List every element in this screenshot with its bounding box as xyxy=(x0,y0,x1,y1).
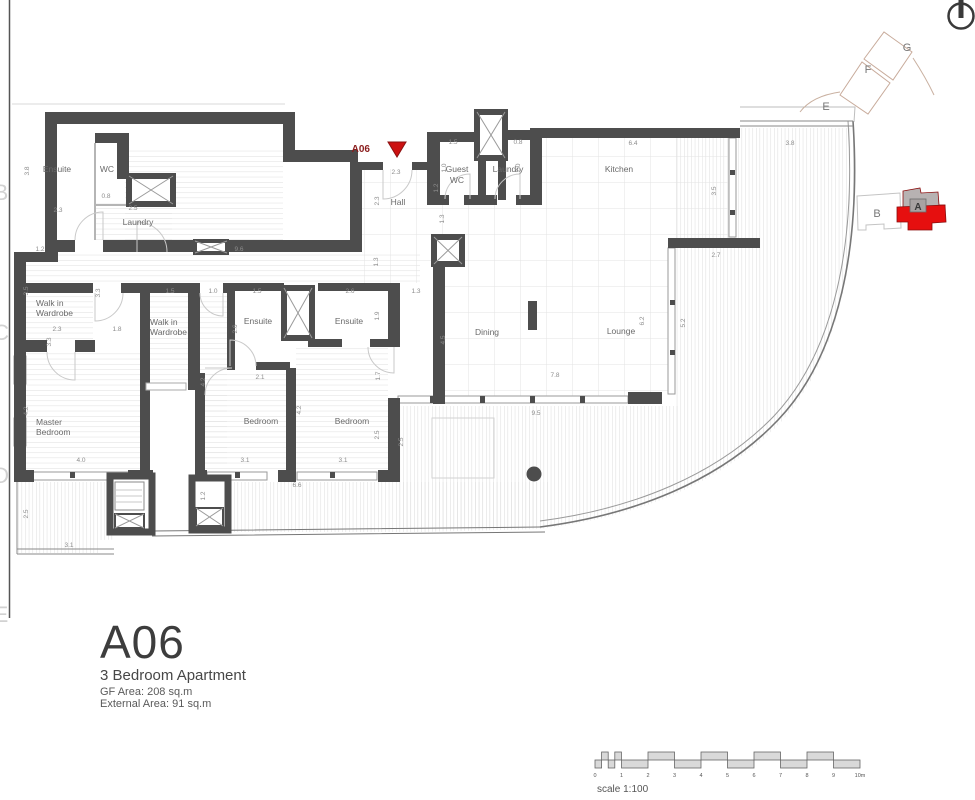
dim: 1.5 xyxy=(165,288,174,295)
north-arrow-icon xyxy=(949,0,974,29)
dim: 1.7 xyxy=(375,371,382,380)
room-label-bedroom-3: Bedroom xyxy=(335,416,370,426)
dim: 2.3 xyxy=(391,169,400,176)
room-label-guest-wc-l2: WC xyxy=(450,175,464,185)
key-plan-letter-f: F xyxy=(865,64,872,76)
dim: 4.2 xyxy=(23,406,30,415)
dim: 4.0 xyxy=(76,457,85,464)
dim: 1.9 xyxy=(374,311,381,320)
entry-arrow-icon xyxy=(388,142,406,157)
dim: 3.3 xyxy=(95,288,102,297)
scale-label: scale 1:100 xyxy=(597,784,649,795)
key-plan-letter-e: E xyxy=(822,101,829,113)
dim: 1.3 xyxy=(373,257,380,266)
dim: 3.1 xyxy=(338,457,347,464)
dim: 2.5 xyxy=(398,437,405,446)
room-label-dining: Dining xyxy=(475,327,499,337)
dim: 0.8 xyxy=(513,139,522,146)
dim: 9.6 xyxy=(234,246,243,253)
dim: 3.8 xyxy=(24,166,31,175)
unit-entry-marker: A06 xyxy=(352,142,406,157)
wardrobe-closet xyxy=(146,383,186,390)
dim: 4.2 xyxy=(200,377,207,386)
scale-tick: 4 xyxy=(699,773,702,779)
scale-tick: 10m xyxy=(855,773,866,779)
room-label-ensuite-1: Ensuite xyxy=(43,164,72,174)
scale-tick: 7 xyxy=(779,773,782,779)
key-plan-letter-b: B xyxy=(873,208,880,220)
title-external-area: External Area: 91 sq.m xyxy=(100,698,211,710)
dim: 2.5 xyxy=(128,205,137,212)
floor-plan-page: Ensuite WC Laundry Walk in Wardrobe Walk… xyxy=(0,0,975,800)
dim: 1.2 xyxy=(433,183,440,192)
key-plan-letter-g: G xyxy=(903,42,912,54)
dim: 2.5 xyxy=(374,430,381,439)
dim: 9.5 xyxy=(531,410,540,417)
dim: 0.8 xyxy=(101,193,110,200)
grid-letter-d: D xyxy=(0,463,9,488)
dim: 2.3 xyxy=(374,196,381,205)
room-label-ensuite-3: Ensuite xyxy=(335,316,364,326)
dim: 1.0 xyxy=(208,288,217,295)
dim: 4.2 xyxy=(296,405,303,414)
title-block: A06 3 Bedroom Apartment GF Area: 208 sq.… xyxy=(100,616,247,710)
dim: 3.5 xyxy=(23,286,30,295)
dim: 1.2 xyxy=(200,491,207,500)
dim: 2.3 xyxy=(53,207,62,214)
room-label-guest-wc-l1: Guest xyxy=(446,164,469,174)
grid-letter-b: B xyxy=(0,180,8,205)
dim: 1.2 xyxy=(35,246,44,253)
scale-tick: 6 xyxy=(752,773,755,779)
dim: 1.8 xyxy=(112,326,121,333)
dim: 6.4 xyxy=(628,140,637,147)
dim: 4.5 xyxy=(440,335,447,344)
scale-tick: 8 xyxy=(805,773,808,779)
scale-bar: 0 1 2 3 4 5 6 7 8 9 10m scale 1:100 xyxy=(593,752,865,795)
room-label-ensuite-2: Ensuite xyxy=(244,316,273,326)
scale-tick: 0 xyxy=(593,773,596,779)
room-label-wardrobe2-l2: Wardrobe xyxy=(150,327,187,337)
room-label-kitchen: Kitchen xyxy=(605,164,634,174)
dim: 2.6 xyxy=(232,324,239,333)
dim: 1.3 xyxy=(439,214,446,223)
dim: 2.7 xyxy=(711,252,720,259)
room-label-master-l2: Bedroom xyxy=(36,427,71,437)
dim: 3.1 xyxy=(240,457,249,464)
dim: 3.3 xyxy=(46,337,53,346)
dim: 2.6 xyxy=(345,288,354,295)
dim: 3.1 xyxy=(64,542,73,549)
dim: 1.5 xyxy=(252,288,261,295)
grid-letter-e: E xyxy=(0,602,8,627)
terrace-column xyxy=(527,467,542,482)
room-label-master-l1: Master xyxy=(36,417,62,427)
dim: 2.5 xyxy=(23,509,30,518)
scale-tick: 1 xyxy=(620,773,623,779)
margin-grid: B C D E xyxy=(0,0,10,627)
living-column xyxy=(528,301,537,330)
dim: 1.0 xyxy=(441,163,448,172)
floor-plan-canvas: Ensuite WC Laundry Walk in Wardrobe Walk… xyxy=(0,0,975,800)
room-label-laundry-1: Laundry xyxy=(123,217,154,227)
scale-tick: 3 xyxy=(673,773,676,779)
room-label-wardrobe1-l2: Wardrobe xyxy=(36,308,73,318)
title-gf-area: GF Area: 208 sq.m xyxy=(100,686,192,698)
dim: 7.8 xyxy=(550,372,559,379)
title-apartment-type: 3 Bedroom Apartment xyxy=(100,667,247,684)
dim: 2.3 xyxy=(52,326,61,333)
dim: 3.5 xyxy=(711,186,718,195)
scale-tick: 2 xyxy=(646,773,649,779)
dim: 6.2 xyxy=(639,316,646,325)
title-unit-number: A06 xyxy=(100,616,185,668)
key-plan-letter-a: A xyxy=(914,202,921,213)
dim: 1.3 xyxy=(411,288,420,295)
scale-tick: 9 xyxy=(832,773,835,779)
room-label-bedroom-2: Bedroom xyxy=(244,416,279,426)
scale-tick: 5 xyxy=(726,773,729,779)
dim: 1.5 xyxy=(448,139,457,146)
dim: 2.1 xyxy=(255,374,264,381)
room-label-hall: Hall xyxy=(391,197,406,207)
room-label-wardrobe1-l1: Walk in xyxy=(36,298,64,308)
dim: 6.6 xyxy=(292,482,301,489)
dim: 5.2 xyxy=(680,318,687,327)
unit-marker-label: A06 xyxy=(352,144,371,155)
room-label-wc: WC xyxy=(100,164,114,174)
dim: 3.8 xyxy=(785,140,794,147)
service-closets xyxy=(110,476,228,532)
room-label-wardrobe2-l1: Walk in xyxy=(150,317,178,327)
dim: 2.0 xyxy=(515,163,522,172)
grid-letter-c: C xyxy=(0,320,9,345)
room-label-lounge: Lounge xyxy=(607,326,636,336)
